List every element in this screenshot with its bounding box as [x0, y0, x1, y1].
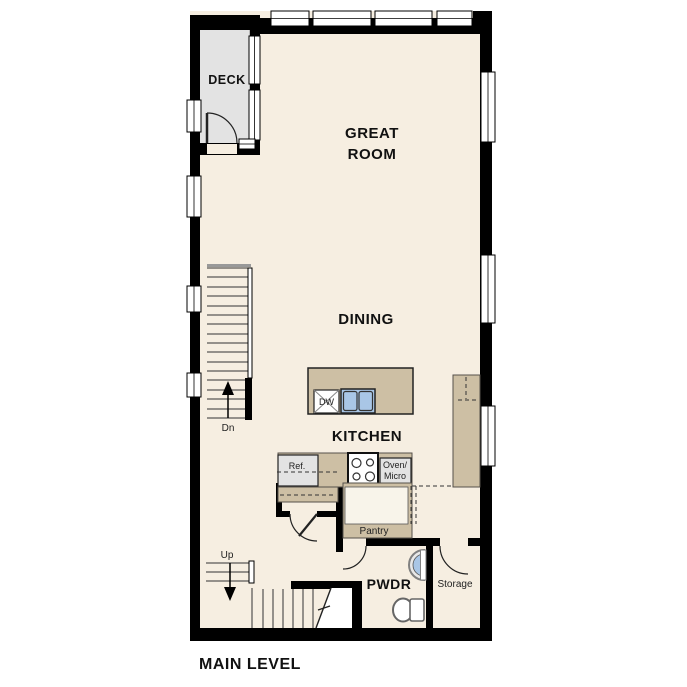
- stairs-down-label: Dn: [222, 423, 235, 434]
- window-deck-2: [249, 90, 260, 140]
- window-left-2: [187, 176, 201, 217]
- floor-plan-drawing: Dn Up Ref. Oven/ Micro: [0, 0, 687, 687]
- great-room-label-1: GREAT: [345, 125, 399, 142]
- pantry-label: Pantry: [360, 526, 389, 537]
- refrigerator-label: Ref.: [289, 461, 306, 471]
- window-deck-bottom: [239, 139, 255, 149]
- window-top-4: [437, 11, 472, 26]
- pantry-shelves: [345, 487, 408, 524]
- oven-micro-label-1: Oven/: [383, 460, 408, 470]
- right-counter: [453, 375, 480, 487]
- pantry: Pantry: [343, 483, 416, 538]
- window-left-1: [187, 100, 201, 132]
- window-top-1: [271, 11, 309, 26]
- window-deck-1: [249, 36, 260, 84]
- floor-plan-page: Dn Up Ref. Oven/ Micro: [0, 0, 687, 687]
- toilet: [393, 599, 424, 622]
- plan-title: MAIN LEVEL: [199, 656, 301, 673]
- dishwasher-label: DW: [319, 397, 334, 407]
- storage-label: Storage: [437, 579, 472, 590]
- window-left-3: [187, 286, 201, 312]
- dining-label: DINING: [338, 311, 394, 328]
- kitchen-island: DW: [308, 368, 413, 414]
- deck-label: DECK: [208, 73, 245, 87]
- window-left-4: [187, 373, 201, 397]
- range-stove: [348, 453, 378, 486]
- stairs-up-label: Up: [221, 550, 234, 561]
- window-right-3: [481, 406, 495, 466]
- great-room-label-2: ROOM: [348, 146, 397, 163]
- window-right-1: [481, 72, 495, 142]
- stair-railing: [248, 268, 252, 378]
- kitchen-sink: [341, 389, 375, 413]
- oven-micro: Oven/ Micro: [380, 458, 411, 486]
- oven-micro-label-2: Micro: [384, 471, 406, 481]
- kitchen-label: KITCHEN: [332, 428, 402, 445]
- window-top-3: [375, 11, 432, 26]
- window-right-2: [481, 255, 495, 323]
- dishwasher: DW: [314, 390, 339, 413]
- pwdr-label: PWDR: [367, 576, 412, 592]
- stair-railing-lower: [249, 561, 254, 583]
- window-top-2: [313, 11, 371, 26]
